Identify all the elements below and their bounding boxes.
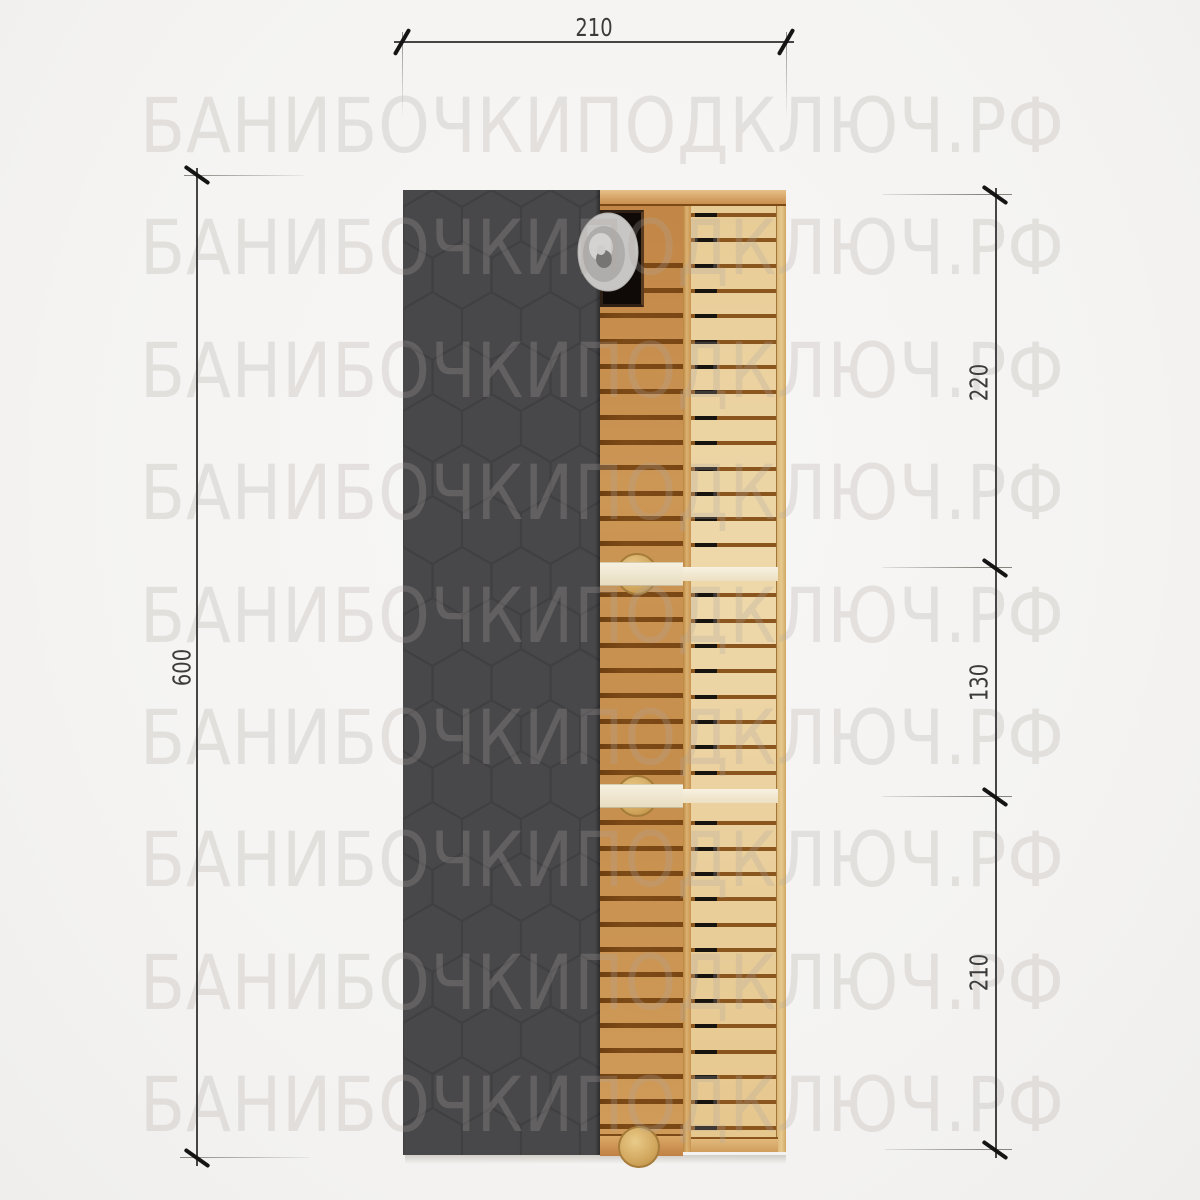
plank-gap <box>691 1050 776 1054</box>
plank-gap-shadow <box>695 314 717 318</box>
plank-gap-shadow <box>695 416 717 420</box>
plank-gap <box>600 313 683 318</box>
plank-gap <box>691 416 776 420</box>
watermark-row: БАНИБОЧКИПОДКЛЮЧ.РФ <box>140 578 1065 654</box>
watermark-row: БАНИБОЧКИПОДКЛЮЧ.РФ <box>140 210 1065 286</box>
watermark-row: БАНИБОЧКИПОДКЛЮЧ.РФ <box>140 333 1065 409</box>
watermark-row: БАНИБОЧКИПОДКЛЮЧ.РФ <box>140 455 1065 531</box>
plank-gap <box>600 541 683 546</box>
plank-gap-shadow <box>695 923 717 927</box>
watermark-row: БАНИБОЧКИПОДКЛЮЧ.РФ <box>140 88 1065 164</box>
plank-gap <box>691 314 776 318</box>
plank-gap <box>691 543 776 547</box>
plank-gap <box>691 923 776 927</box>
plank-gap <box>600 440 683 445</box>
dimension-label-segment: 130 <box>967 651 992 713</box>
dimension-line-right <box>995 188 997 1158</box>
dimension-label-length: 600 <box>170 636 195 698</box>
blueprint-canvas: 210 600 220 130 210 БАНИБОЧКИПОДКЛЮЧ.РФБ… <box>0 0 1200 1200</box>
dimension-label-width: 210 <box>563 15 625 40</box>
plank-gap <box>600 1048 683 1053</box>
plank-gap <box>600 922 683 927</box>
plank-gap-shadow <box>695 543 717 547</box>
plank-gap-shadow <box>695 1050 717 1054</box>
plank-gap <box>691 669 776 673</box>
plank-gap-shadow <box>695 441 717 445</box>
watermark-row: БАНИБОЧКИПОДКЛЮЧ.РФ <box>140 945 1065 1021</box>
dimension-label-segment: 220 <box>967 351 992 413</box>
plank-gap <box>600 668 683 673</box>
plank-gap <box>600 415 683 420</box>
watermark-row: БАНИБОЧКИПОДКЛЮЧ.РФ <box>140 822 1065 898</box>
plank-gap <box>691 441 776 445</box>
partition-wall-thin <box>683 789 778 803</box>
watermark-row: БАНИБОЧКИПОДКЛЮЧ.РФ <box>140 1067 1065 1143</box>
drawing-shadow <box>405 1155 786 1164</box>
plank-gap-shadow <box>695 669 717 673</box>
watermark-row: БАНИБОЧКИПОДКЛЮЧ.РФ <box>140 700 1065 776</box>
dimension-label-segment: 210 <box>967 941 992 1003</box>
partition-wall <box>600 784 683 808</box>
